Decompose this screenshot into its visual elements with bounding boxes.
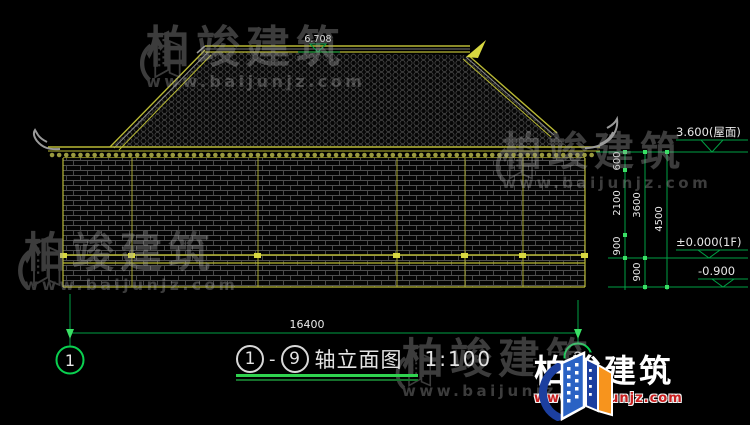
axis-bubble-1: 1	[57, 347, 84, 374]
roof-eave	[48, 147, 600, 158]
axis-bubble-1-label: 1	[65, 351, 75, 370]
drawing-title: 1 - 9 轴立面图 1:100	[236, 344, 492, 374]
level-floor: ±0.000(1F)	[676, 235, 741, 249]
dim-3600: 3600	[632, 192, 643, 217]
title-scale: 1:100	[425, 347, 493, 371]
dim-4500: 4500	[654, 206, 665, 231]
title-axis-end: 9	[281, 345, 309, 373]
brand-logo-icon	[532, 349, 620, 423]
level-eave: 3.600(屋面)	[676, 125, 741, 139]
level-ridge: 6.708	[304, 34, 331, 45]
level-ground: -0.900	[698, 264, 735, 278]
dim-overall-width: 16400	[290, 318, 325, 331]
dim-600: 600	[612, 151, 623, 170]
title-underline-shadow	[236, 379, 418, 381]
title-dash: -	[269, 349, 276, 370]
dim-900b: 900	[632, 262, 643, 281]
roof	[34, 40, 617, 158]
cad-canvas: 1 9 6.708 3.600(屋面) ±0.000(1F) -0.900 60…	[0, 0, 750, 425]
wall	[60, 158, 588, 287]
dim-2100: 2100	[612, 190, 623, 215]
right-eave-curl	[585, 119, 617, 148]
brand-logo: 柏竣建筑 www.baijunjz.com	[532, 349, 683, 406]
title-axis-start: 1	[236, 345, 264, 373]
title-label: 轴立面图	[315, 344, 403, 374]
dim-900a: 900	[612, 236, 623, 255]
title-underline	[236, 374, 418, 377]
